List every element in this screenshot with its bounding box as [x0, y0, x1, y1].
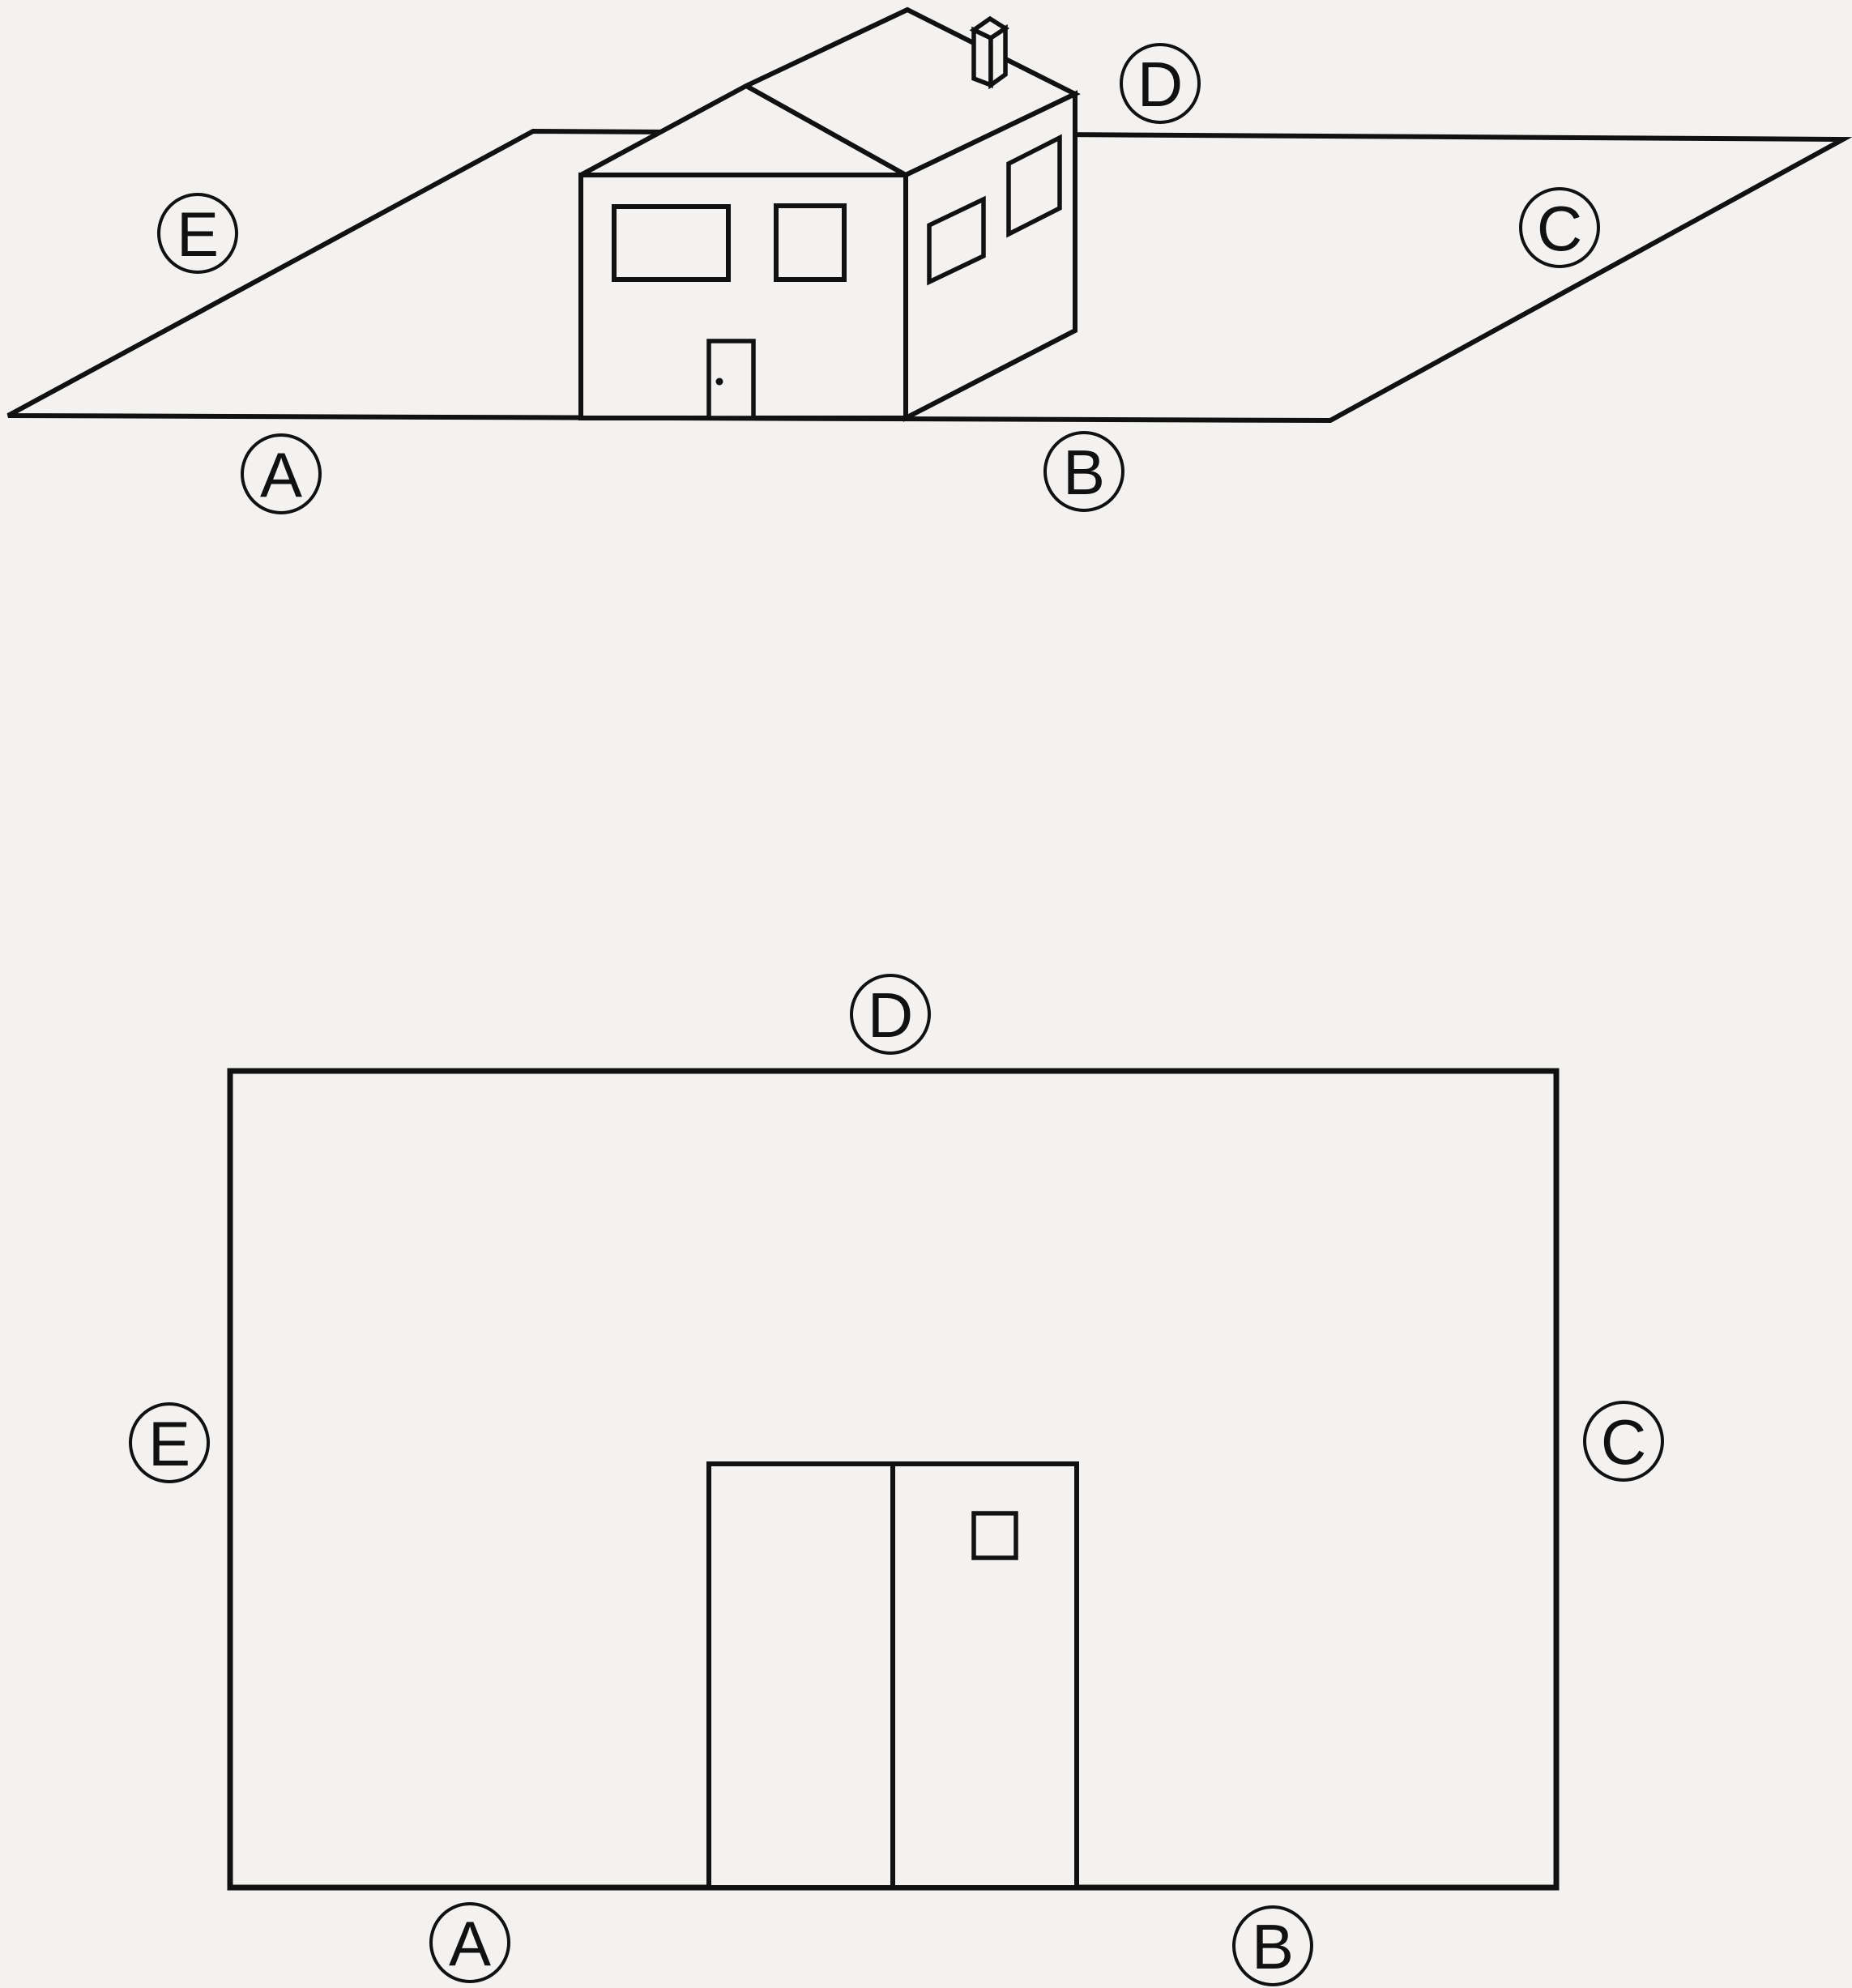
- bottom-label-C: C: [1585, 1402, 1662, 1480]
- bottom-label-D: D: [851, 975, 929, 1053]
- top-label-E-letter: E: [177, 198, 219, 270]
- bottom-label-A: A: [431, 1904, 509, 1982]
- top-label-A: A: [242, 435, 320, 513]
- top-label-E: E: [159, 194, 237, 272]
- bottom-label-D-letter: D: [868, 979, 913, 1051]
- perspective-view-diagram: E A B D C: [8, 10, 1843, 513]
- chimney: [974, 19, 1005, 85]
- door-knob: [716, 378, 723, 386]
- top-label-C: C: [1521, 189, 1598, 267]
- top-label-D: D: [1121, 45, 1199, 122]
- bottom-label-E-letter: E: [148, 1408, 190, 1479]
- bottom-label-E: E: [130, 1404, 208, 1482]
- bottom-label-A-letter: A: [449, 1908, 491, 1979]
- bottom-label-B: B: [1234, 1907, 1312, 1985]
- front-window-right: [776, 206, 844, 279]
- front-window-left: [614, 207, 728, 279]
- chimney-front-face: [974, 30, 991, 85]
- top-label-B: B: [1045, 433, 1123, 510]
- top-label-D-letter: D: [1137, 49, 1183, 120]
- front-door: [709, 341, 753, 418]
- bottom-label-C-letter: C: [1601, 1406, 1646, 1478]
- chimney-side-face: [991, 28, 1005, 85]
- top-label-B-letter: B: [1063, 437, 1105, 508]
- top-label-C-letter: C: [1537, 193, 1582, 264]
- worksheet-canvas: E A B D C D E: [0, 0, 1852, 1988]
- top-label-A-letter: A: [260, 439, 302, 510]
- bottom-label-B-letter: B: [1252, 1911, 1294, 1982]
- elevation-view-diagram: D E C A B: [130, 975, 1662, 1985]
- elevation-small-window: [974, 1513, 1016, 1558]
